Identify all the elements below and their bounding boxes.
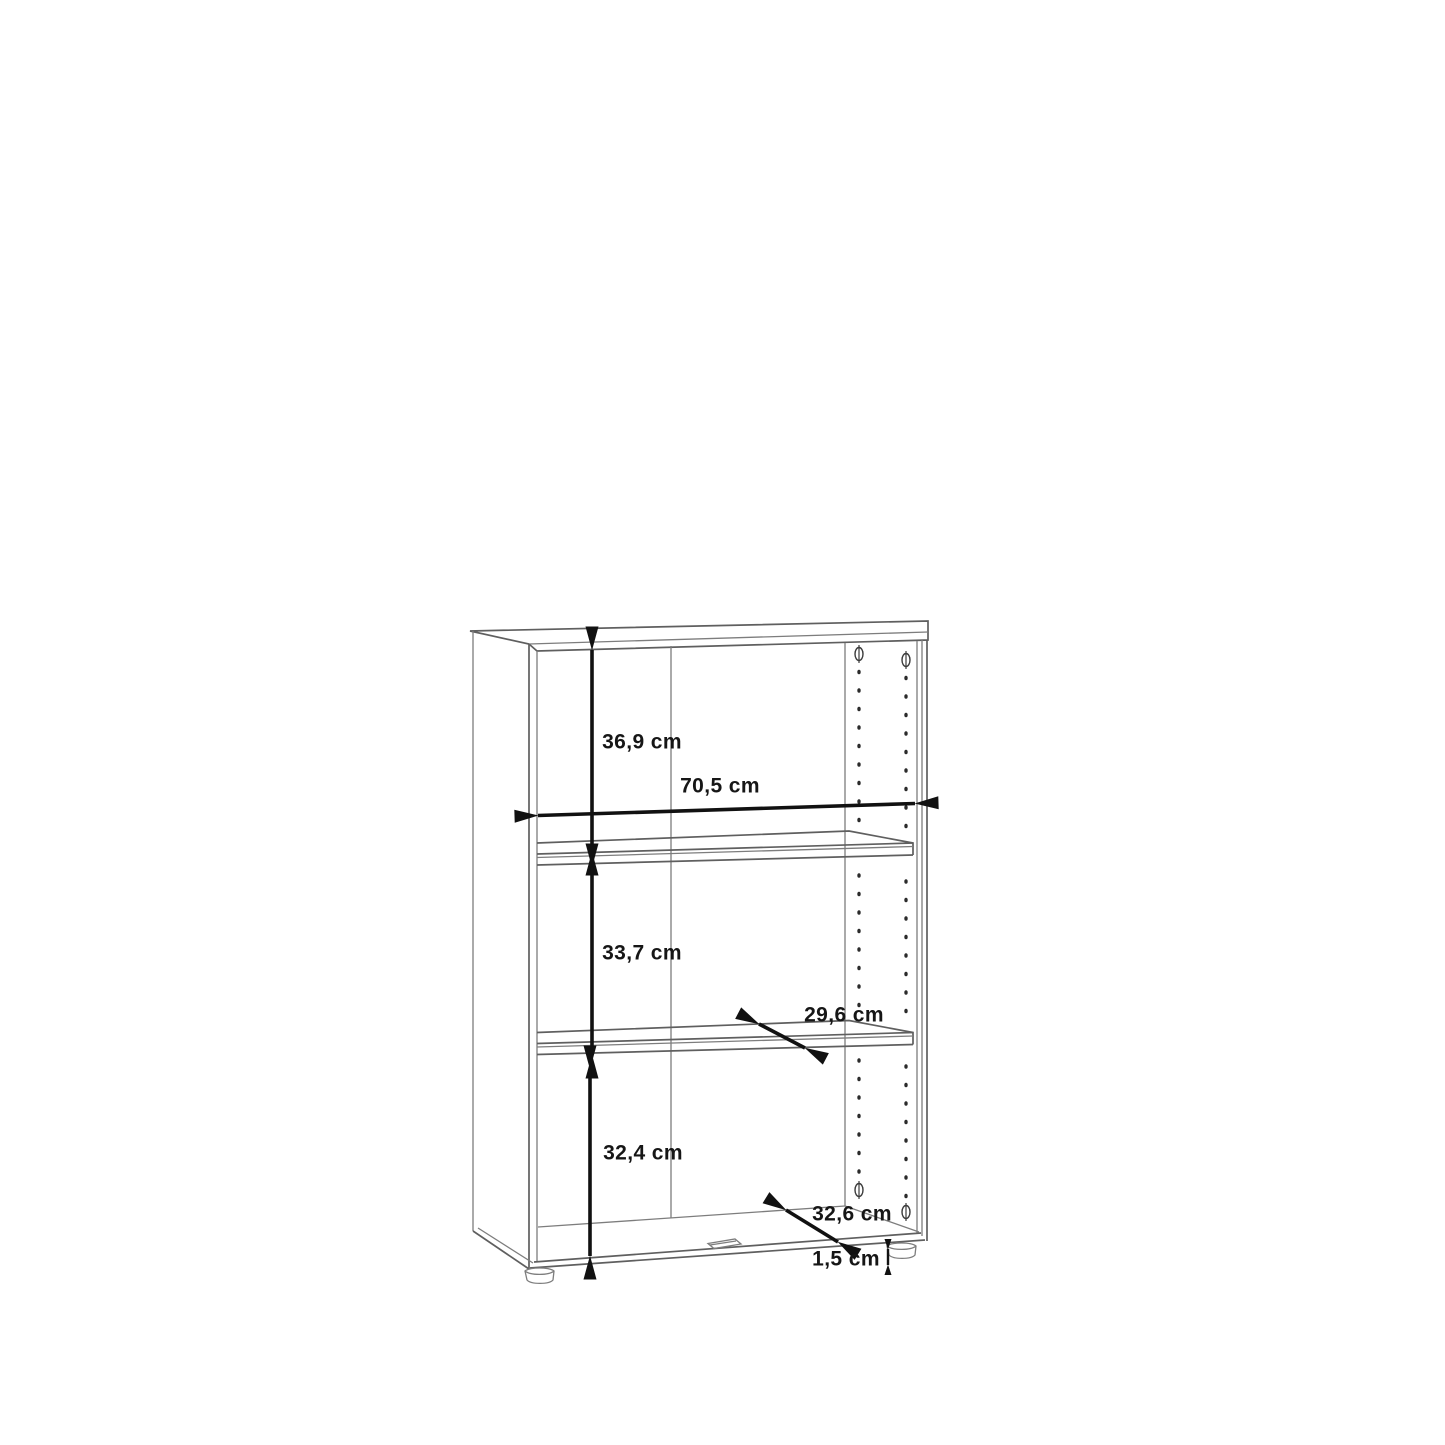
shelf-pin-hole [904, 805, 907, 810]
shelf-pin-hole [857, 984, 860, 989]
dimension-label-middle-section-height: 33,7 cm [602, 943, 682, 964]
shelf-pin-hole [857, 688, 860, 693]
shelf-pin-hole [857, 873, 860, 878]
diagram-canvas: 36,9 cm 70,5 cm 33,7 cm 29,6 cm 32,4 cm … [0, 0, 1445, 1445]
shelf-pin-hole [857, 1132, 860, 1137]
shelf-pin-hole [857, 799, 860, 804]
dimension-label-base-depth: 32,6 cm [812, 1204, 892, 1225]
shelf-pin-hole [857, 1077, 860, 1082]
shelf-pin-hole [857, 910, 860, 915]
shelf-pin-hole [857, 966, 860, 971]
shelf-pin-hole [857, 781, 860, 786]
dimension-label-inner-width: 70,5 cm [680, 776, 760, 797]
shelf-pin-hole [904, 1120, 907, 1125]
shelf-pin-hole [904, 916, 907, 921]
shelf-pin-hole [904, 898, 907, 903]
shelf-pin-hole [904, 1194, 907, 1199]
shelf-pin-hole [904, 1064, 907, 1069]
shelf-pin-hole [904, 713, 907, 718]
shelf-pin-hole [857, 1114, 860, 1119]
shelf-pin-hole [904, 990, 907, 995]
shelf-pin-hole [904, 1009, 907, 1014]
shelf-pin-hole [857, 929, 860, 934]
shelf-pin-hole [904, 1157, 907, 1162]
foot-right [887, 1243, 916, 1258]
dimension-label-foot-height: 1,5 cm [812, 1249, 880, 1270]
back-panel [671, 643, 845, 1218]
shelf-pin-hole [857, 762, 860, 767]
shelf-pin-hole [904, 676, 907, 681]
dimension-label-shelf-depth: 29,6 cm [804, 1005, 884, 1026]
shelf-pin-hole [904, 787, 907, 792]
right-side-panel [917, 640, 927, 1241]
furniture-line-drawing [0, 0, 1445, 1445]
dimension-label-top-section-height: 36,9 cm [602, 732, 682, 753]
shelf-pin-hole [904, 1175, 907, 1180]
shelf-pin-hole [904, 1138, 907, 1143]
shelf-pin-hole [857, 947, 860, 952]
cabinet-outline [470, 621, 928, 1283]
shelf-pin-hole [904, 879, 907, 884]
left-side-panel [473, 631, 537, 1269]
shelf-pin-hole [904, 824, 907, 829]
shelf-pin-hole [904, 953, 907, 958]
shelf-pin-hole [857, 670, 860, 675]
shelf-pin-hole [904, 750, 907, 755]
dim-arrow-inner-width [538, 804, 915, 816]
shelf-pin-holes [855, 645, 910, 1221]
shelf-pin-hole [904, 768, 907, 773]
shelf-pin-hole [904, 972, 907, 977]
shelf-pin-hole [857, 1169, 860, 1174]
shelf-pin-hole [857, 1095, 860, 1100]
shelf-pin-hole [857, 818, 860, 823]
shelf-pin-hole [857, 892, 860, 897]
dimension-label-bottom-section-height: 32,4 cm [603, 1143, 683, 1164]
shelf-pin-hole [857, 725, 860, 730]
foot-left [525, 1268, 554, 1283]
shelf-pin-hole [857, 744, 860, 749]
shelf-pin-hole [904, 694, 907, 699]
shelf-pin-hole [904, 935, 907, 940]
shelf-pin-hole [857, 707, 860, 712]
shelf-pin-hole [857, 1151, 860, 1156]
shelf-pin-hole [904, 731, 907, 736]
shelf-pin-hole [904, 1083, 907, 1088]
shelf-pin-hole [857, 1058, 860, 1063]
shelf-pin-hole [904, 1101, 907, 1106]
